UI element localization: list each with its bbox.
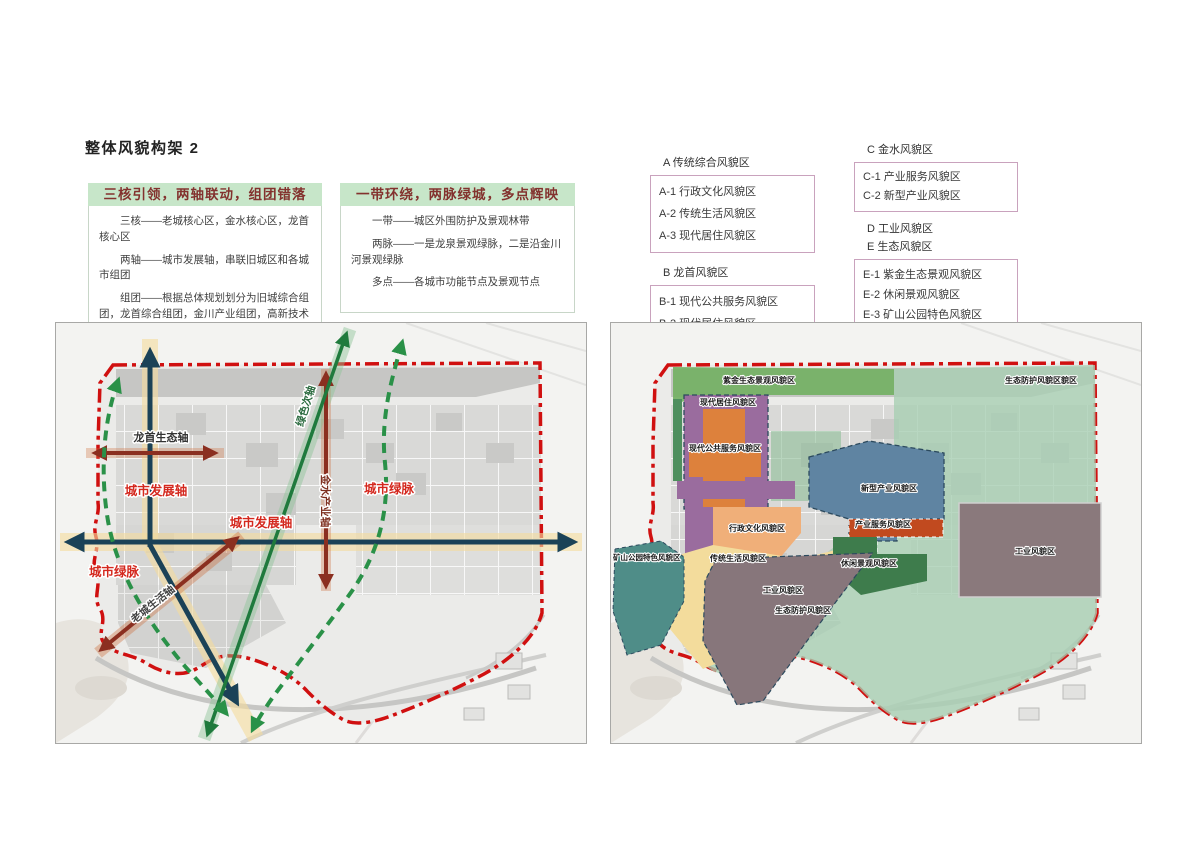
city-dev-axis-label-horizontal: 城市发展轴 [230,515,293,530]
city-green-vein-label-west: 城市绿脉 [89,564,140,579]
mining-park-label: 矿山公园特色风貌区 [613,552,681,562]
zones-map-panel: 紫金生态景观风貌区 生态防护风貌区貌区 现代居住风貌区 现代公共服务风貌区 新型… [610,322,1142,744]
modern-public-label: 现代公共服务风貌区 [689,443,761,453]
axes-map-panel: 龙首生态轴 城市发展轴 城市发展轴 城市绿脉 城市绿脉 绿色次轴 金水产业轴 老… [55,322,587,744]
concept-line: 三核——老城核心区，金水核心区，龙首核心区 [99,214,311,246]
legend-item: E-2 休闲景观风貌区 [863,285,1009,305]
zijin-band-label: 紫金生态景观风貌区 [723,375,795,385]
legend-group-a-box: A-1 行政文化风貌区 A-2 传统生活风貌区 A-3 现代居住风貌区 [650,175,815,253]
concept-line: 一带——城区外围防护及景观林带 [351,214,564,230]
concept-line: 两轴——城市发展轴，串联旧城区和各城市组团 [99,253,311,285]
industry-diagonal-label: 工业风貌区 [763,585,803,595]
page-title: 整体风貌构架 2 [85,137,200,158]
industry-service-label: 产业服务风貌区 [855,519,911,529]
admin-culture-label: 行政文化风貌区 [728,523,785,533]
legend-group-c-title: C 金水风貌区 [867,142,1018,158]
industry-east-label: 工业风貌区 [1015,546,1055,556]
modern-residence-label: 现代居住风貌区 [700,397,756,407]
legend-group-b-title: B 龙首风貌区 [663,265,815,281]
concept-box-belt-header: 一带环绕，两脉绿城，多点辉映 [340,183,575,206]
concept-box-belt: 一带环绕，两脉绿城，多点辉映 一带——城区外围防护及景观林带 两脉——一是龙泉景… [340,183,575,313]
concept-line: 多点——各城市功能节点及景观节点 [351,275,564,291]
legend-group-a-title: A 传统综合风貌区 [663,155,815,171]
concept-box-cores-header: 三核引领，两轴联动，组团错落 [88,183,322,206]
legend-item: A-2 传统生活风貌区 [659,203,806,225]
zone-green-sliver [673,399,682,481]
eco-top-label: 生态防护风貌区貌区 [1005,375,1077,385]
zones-map: 紫金生态景观风貌区 生态防护风貌区貌区 现代居住风貌区 现代公共服务风貌区 新型… [611,323,1141,743]
longshou-eco-axis-label: 龙首生态轴 [133,430,189,444]
legend-item: C-1 产业服务风貌区 [863,168,1009,187]
page-background: 整体风貌构架 2 三核引领，两轴联动，组团错落 三核——老城核心区，金水核心区，… [0,0,1200,849]
eco-bottom-label: 生态防护风貌区 [775,605,831,615]
axes-map: 龙首生态轴 城市发展轴 城市发展轴 城市绿脉 城市绿脉 绿色次轴 金水产业轴 老… [56,323,586,743]
legend-item: B-1 现代公共服务风貌区 [659,291,806,313]
zone-purple-band [677,481,795,499]
legend-group-d-title: D 工业风貌区 [867,221,1018,237]
legend-item: E-1 紫金生态景观风貌区 [863,265,1009,285]
legend-group-c-box: C-1 产业服务风貌区 C-2 新型产业风貌区 [854,162,1018,212]
legend-item: C-2 新型产业风貌区 [863,187,1009,206]
traditional-life-label: 传统生活风貌区 [709,553,766,563]
concept-box-belt-body: 一带——城区外围防护及景观林带 两脉——一是龙泉景观绿脉，二是沿金川河景观绿脉 … [340,206,575,313]
legend-group-e-title: E 生态风貌区 [867,239,1018,255]
concept-line: 两脉——一是龙泉景观绿脉，二是沿金川河景观绿脉 [351,237,564,269]
new-industry-label: 新型产业风貌区 [861,483,917,493]
jinshui-industry-axis-label: 金水产业轴 [319,474,332,528]
city-dev-axis-label-vertical: 城市发展轴 [125,483,188,498]
legend-item: A-1 行政文化风貌区 [659,181,806,203]
leisure-label: 休闲景观风貌区 [840,558,897,568]
legend-item: A-3 现代居住风貌区 [659,225,806,247]
city-green-vein-label-east: 城市绿脉 [364,481,415,496]
